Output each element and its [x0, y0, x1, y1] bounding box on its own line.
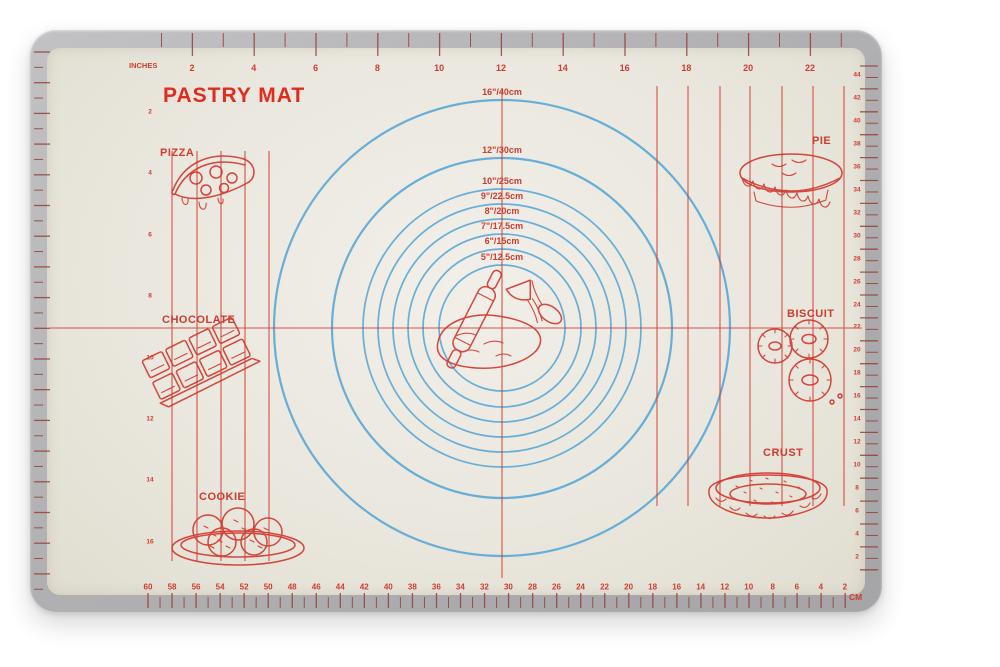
- ruler-left-number: 12: [146, 416, 153, 423]
- ruler-bottom-number: 32: [480, 583, 489, 592]
- ruler-bottom-number: 8: [771, 583, 775, 592]
- ruler-right-number: 42: [853, 94, 860, 101]
- ruler-top-number: 22: [805, 63, 815, 73]
- ruler-bottom-number: 42: [360, 583, 369, 592]
- mat-title: PASTRY MAT: [163, 84, 305, 108]
- circle-size-label: 7"/17.5cm: [481, 221, 523, 231]
- cookie-label: COOKIE: [199, 491, 245, 503]
- circle-size-label: 6"/15cm: [485, 236, 520, 246]
- ruler-left-number: 2: [148, 109, 152, 116]
- ruler-top-number: 12: [496, 63, 506, 73]
- circle-size-label: 5"/12.5cm: [481, 252, 523, 262]
- ruler-bottom-number: 56: [192, 583, 201, 592]
- ruler-right-number: 40: [853, 117, 860, 124]
- ruler-bottom-number: 10: [744, 583, 753, 592]
- ruler-bottom-number: 50: [264, 583, 273, 592]
- circle-size-label: 10"/25cm: [482, 176, 522, 186]
- ruler-left-number: 14: [146, 477, 153, 484]
- ruler-bottom-number: 4: [819, 583, 823, 592]
- ruler-left-number: 4: [148, 170, 152, 177]
- ruler-bottom-number: 20: [624, 583, 633, 592]
- ruler-bottom-number: 58: [168, 583, 177, 592]
- circle-size-label: 9"/22.5cm: [481, 191, 523, 201]
- ruler-bottom-number: 54: [216, 583, 225, 592]
- ruler-top-number: 14: [558, 63, 568, 73]
- ruler-bottom-number: 60: [144, 583, 153, 592]
- ruler-right-number: 38: [853, 140, 860, 147]
- ruler-top-number: 2: [189, 63, 194, 73]
- ruler-bottom-number: 18: [648, 583, 657, 592]
- ruler-bottom-number: 28: [528, 583, 537, 592]
- ruler-bottom-number: 24: [576, 583, 585, 592]
- circle-size-label: 12"/30cm: [482, 145, 522, 155]
- ruler-top-number: 4: [251, 63, 256, 73]
- ruler-bottom-number: 46: [312, 583, 321, 592]
- ruler-right-number: 32: [853, 209, 860, 216]
- crust-label: CRUST: [763, 447, 803, 459]
- ruler-bottom-number: 2: [843, 583, 847, 592]
- ruler-bottom-number: 14: [696, 583, 705, 592]
- ruler-bottom-number: 26: [552, 583, 561, 592]
- cm-unit-label: CM: [849, 592, 862, 602]
- ruler-right-number: 44: [853, 72, 860, 79]
- ruler-top-number: 10: [434, 63, 444, 73]
- ruler-bottom-number: 6: [795, 583, 799, 592]
- ruler-right-number: 18: [853, 370, 860, 377]
- pizza-label: PIZZA: [160, 147, 194, 159]
- ruler-top-number: 18: [681, 63, 691, 73]
- ruler-right-number: 24: [853, 301, 860, 308]
- ruler-right-number: 28: [853, 255, 860, 262]
- ruler-bottom-number: 22: [600, 583, 609, 592]
- chocolate-label: CHOCOLATE: [162, 314, 235, 326]
- ruler-bottom-number: 40: [384, 583, 393, 592]
- circle-size-label: 8"/20cm: [485, 206, 520, 216]
- ruler-right-number: 14: [853, 416, 860, 423]
- ruler-right-number: 36: [853, 163, 860, 170]
- ruler-right-number: 2: [855, 553, 859, 560]
- ruler-bottom-number: 36: [432, 583, 441, 592]
- ruler-top-number: 8: [375, 63, 380, 73]
- ruler-bottom-number: 16: [672, 583, 681, 592]
- ruler-top-number: 20: [743, 63, 753, 73]
- ruler-right-number: 30: [853, 232, 860, 239]
- ruler-right-number: 10: [853, 462, 860, 469]
- ruler-left-number: 6: [148, 231, 152, 238]
- pastry-mat: [30, 30, 882, 612]
- ruler-right-number: 6: [855, 508, 859, 515]
- ruler-right-number: 20: [853, 347, 860, 354]
- biscuit-label: BISCUIT: [787, 308, 835, 320]
- ruler-right-number: 34: [853, 186, 860, 193]
- ruler-right-number: 26: [853, 278, 860, 285]
- ruler-bottom-number: 48: [288, 583, 297, 592]
- ruler-right-number: 16: [853, 393, 860, 400]
- ruler-right-number: 22: [853, 324, 860, 331]
- inches-unit-label: INCHES: [129, 61, 157, 70]
- ruler-bottom-number: 52: [240, 583, 249, 592]
- ruler-right-number: 4: [855, 531, 859, 538]
- product-photo: PASTRY MAT INCHES CM PIZZA CHOCOLATE COO…: [0, 0, 1000, 667]
- ruler-left-number: 8: [148, 293, 152, 300]
- ruler-right-number: 12: [853, 439, 860, 446]
- ruler-left-number: 10: [146, 354, 153, 361]
- ruler-bottom-number: 34: [456, 583, 465, 592]
- ruler-bottom-number: 38: [408, 583, 417, 592]
- ruler-left-number: 16: [146, 538, 153, 545]
- ruler-right-number: 8: [855, 485, 859, 492]
- ruler-bottom-number: 30: [504, 583, 513, 592]
- ruler-top-number: 6: [313, 63, 318, 73]
- ruler-top-number: 16: [620, 63, 630, 73]
- ruler-bottom-number: 12: [720, 583, 729, 592]
- pie-label: PIE: [812, 135, 831, 147]
- circle-size-label: 16"/40cm: [482, 87, 522, 97]
- ruler-bottom-number: 44: [336, 583, 345, 592]
